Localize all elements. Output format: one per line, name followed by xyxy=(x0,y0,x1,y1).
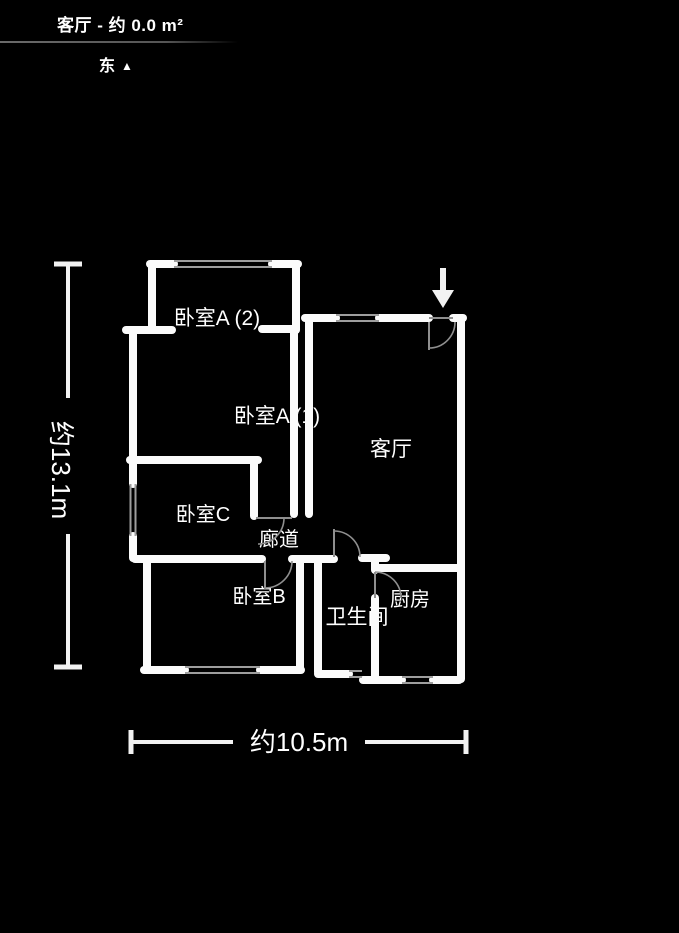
room-label-bedroom-c: 卧室C xyxy=(176,503,230,526)
entrance-arrow-layer xyxy=(432,268,454,308)
floorplan-svg: 卧室A (2)卧室A (1)客厅卧室C廊道卧室B卫生间厨房 约13.1m约10.… xyxy=(0,0,679,933)
entrance-arrow-icon xyxy=(432,290,454,308)
room-label-living-room: 客厅 xyxy=(370,438,412,461)
door-swing-arc xyxy=(429,322,455,348)
door-swing-arc xyxy=(334,531,360,557)
doors-layer xyxy=(256,318,455,598)
dimension-width-label: 约10.5m xyxy=(250,727,348,757)
room-label-corridor: 廊道 xyxy=(259,528,299,551)
door-swing-arc xyxy=(265,561,292,588)
room-label-bedroom-a2: 卧室A (2) xyxy=(174,307,260,330)
room-label-bedroom-b: 卧室B xyxy=(232,585,285,608)
room-label-bathroom: 卫生间 xyxy=(326,606,389,629)
room-label-kitchen: 厨房 xyxy=(390,588,430,611)
dimension-height-label: 约13.1m xyxy=(46,421,76,519)
floorplan-canvas: 客厅 - 约 0.0 m² 东▲ 卧室A (2)卧室A (1)客厅卧室C廊道卧室… xyxy=(0,0,679,933)
